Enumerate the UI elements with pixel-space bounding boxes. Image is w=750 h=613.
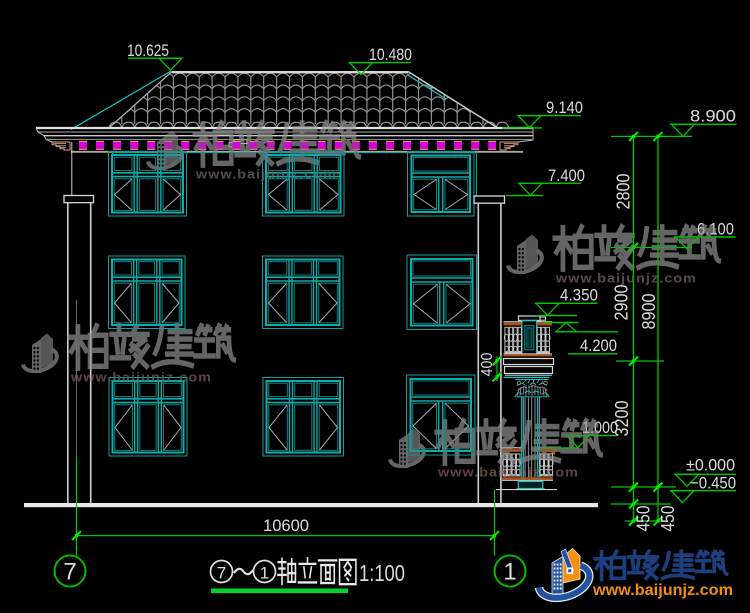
svg-text:2800: 2800 — [614, 174, 634, 210]
svg-text:8.900: 8.900 — [690, 107, 736, 126]
svg-text:7: 7 — [63, 559, 76, 586]
svg-text:−0.450: −0.450 — [690, 474, 736, 493]
svg-text:www.baijunjz.com: www.baijunjz.com — [70, 370, 212, 385]
svg-text:2900: 2900 — [612, 285, 632, 321]
svg-text:www.baijunjz.com: www.baijunjz.com — [195, 167, 337, 182]
svg-text:www.baijunjz.com: www.baijunjz.com — [592, 582, 733, 599]
svg-text:1: 1 — [503, 559, 516, 586]
svg-text:±0.000: ±0.000 — [686, 456, 735, 475]
svg-text:1: 1 — [260, 564, 269, 583]
svg-text:10600: 10600 — [263, 516, 309, 535]
svg-text:450: 450 — [634, 506, 654, 532]
svg-text:8900: 8900 — [639, 294, 659, 330]
svg-text:450: 450 — [658, 506, 678, 532]
svg-text:4.350: 4.350 — [560, 286, 598, 305]
svg-text:10.625: 10.625 — [127, 41, 169, 60]
svg-text:www.baijunjz.com: www.baijunjz.com — [555, 271, 697, 286]
svg-text:www.baijunjz.com: www.baijunjz.com — [437, 465, 579, 480]
svg-text:3200: 3200 — [612, 401, 632, 437]
svg-text:7: 7 — [217, 564, 226, 583]
svg-text:10.480: 10.480 — [369, 45, 412, 64]
svg-text:9.140: 9.140 — [546, 98, 583, 117]
svg-text:1:100: 1:100 — [359, 560, 405, 586]
svg-text:7.400: 7.400 — [548, 166, 585, 185]
svg-text:4.200: 4.200 — [580, 336, 617, 355]
svg-text:400: 400 — [479, 352, 496, 376]
